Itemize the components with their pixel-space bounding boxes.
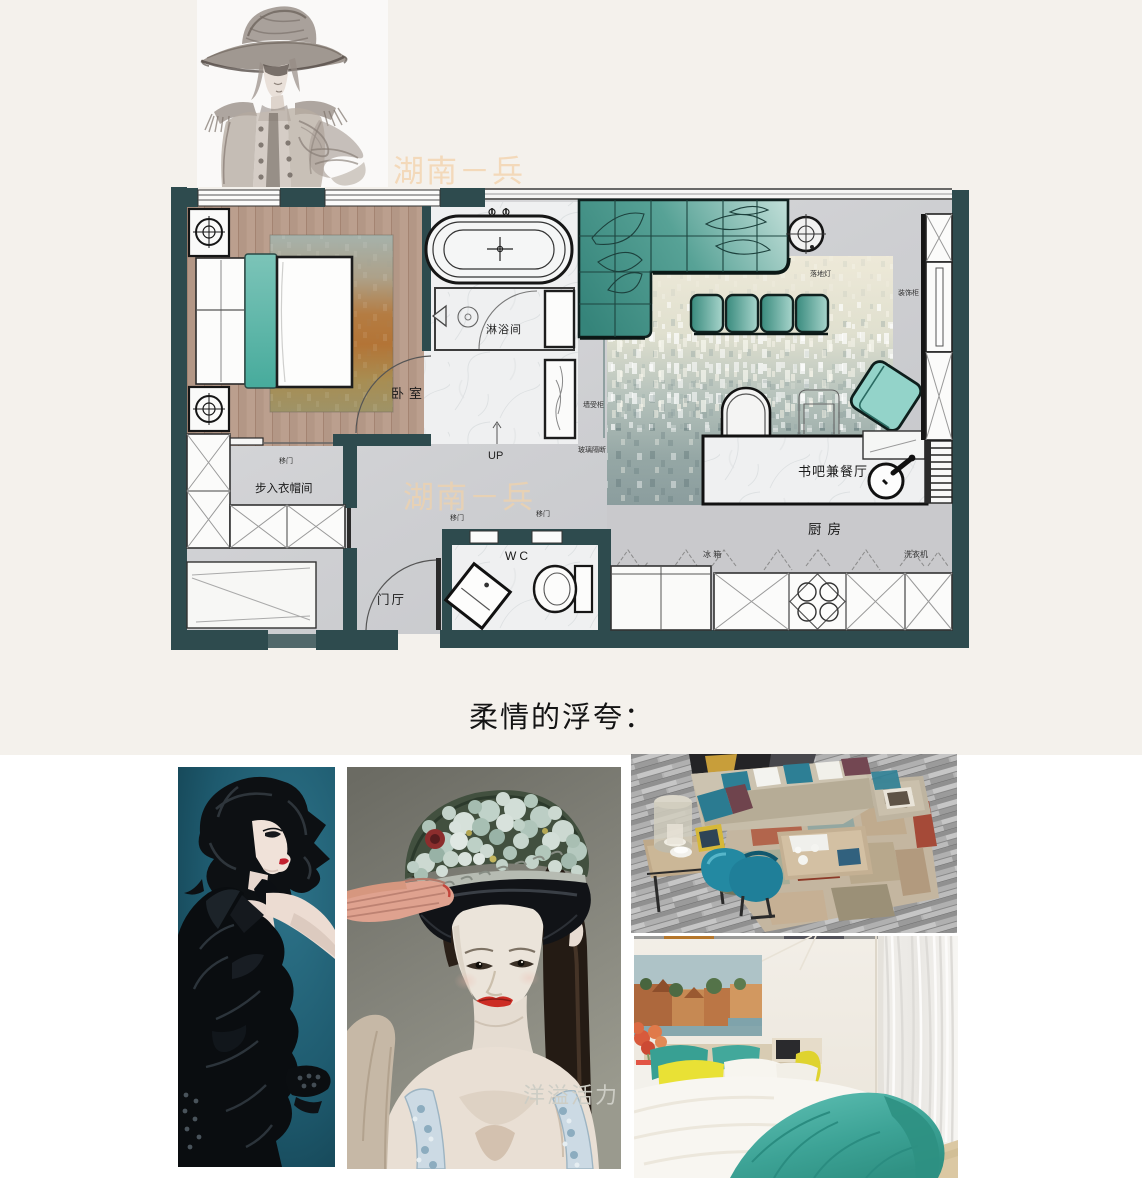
svg-text:WC: WC: [505, 549, 531, 563]
svg-text:墙受柜: 墙受柜: [583, 400, 604, 409]
svg-text:步入衣帽间: 步入衣帽间: [255, 481, 313, 495]
svg-text:玻璃隔断: 玻璃隔断: [578, 445, 606, 454]
svg-text:UP: UP: [488, 450, 503, 462]
svg-text:装饰柜: 装饰柜: [898, 288, 919, 297]
svg-text:厨房: 厨房: [808, 522, 847, 537]
svg-text:移门: 移门: [279, 456, 293, 465]
svg-text:卧室: 卧室: [391, 386, 427, 401]
svg-text:淋浴间: 淋浴间: [486, 323, 522, 336]
svg-text:冰 箱: 冰 箱: [703, 549, 721, 559]
svg-text:洗衣机: 洗衣机: [904, 549, 928, 559]
svg-text:门厅: 门厅: [377, 592, 406, 607]
svg-text:落地灯: 落地灯: [810, 269, 831, 278]
svg-text:书吧兼餐厅: 书吧兼餐厅: [798, 464, 868, 479]
